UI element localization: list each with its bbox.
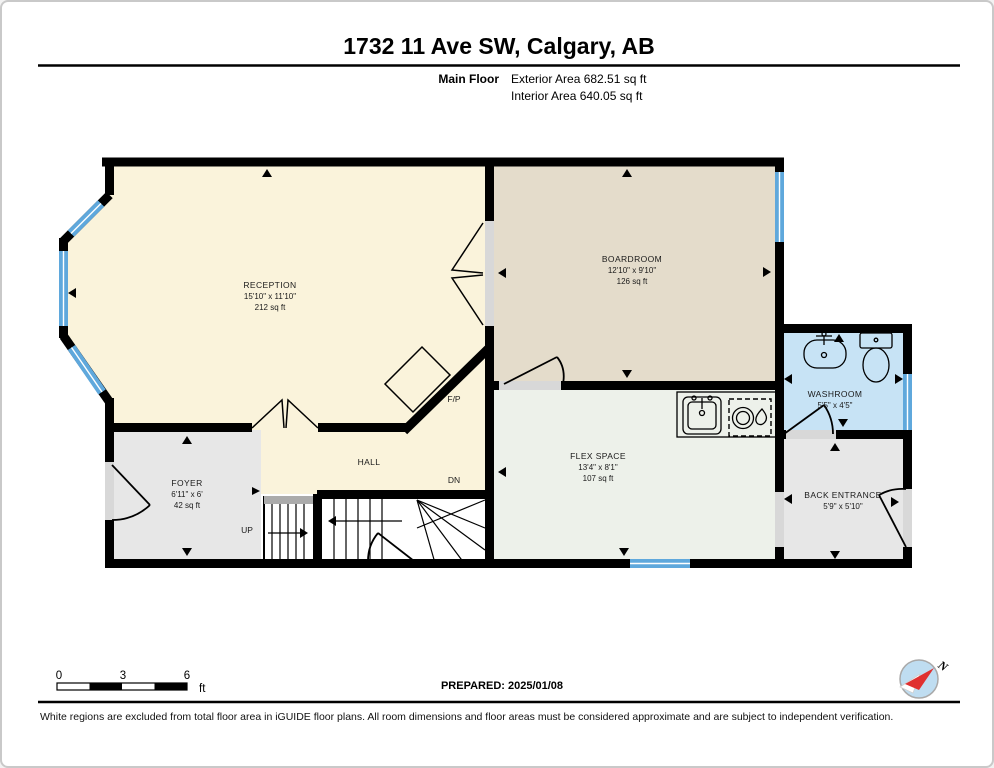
reception-area: 212 sq ft xyxy=(255,303,286,312)
foyer-area: 42 sq ft xyxy=(174,501,201,510)
flex-space-room-area xyxy=(485,386,780,563)
floorplan-canvas: 1732 11 Ave SW, Calgary, AB Main Floor E… xyxy=(2,2,994,768)
reception-label: RECEPTION xyxy=(243,280,296,290)
back-entrance-room-area xyxy=(780,439,907,563)
stairs-down-label: DN xyxy=(448,475,460,485)
boardroom-area: 126 sq ft xyxy=(617,277,648,286)
flex-space-dims: 13'4" x 8'1" xyxy=(578,463,618,472)
boardroom-dims: 12'10" x 9'10" xyxy=(608,266,656,275)
foyer-dims: 6'11" x 6' xyxy=(171,490,203,499)
scale-tick-6: 6 xyxy=(184,670,190,682)
boardroom-label: BOARDROOM xyxy=(602,254,662,264)
reception-dims: 15'10" x 11'10" xyxy=(244,292,296,301)
compass-icon: N xyxy=(900,657,952,698)
stairs-up-label: UP xyxy=(241,525,253,535)
hall-label: HALL xyxy=(358,457,381,467)
flex-space-label: FLEX SPACE xyxy=(570,451,626,461)
back-entrance-dims: 5'9" x 5'10" xyxy=(823,502,863,511)
disclaimer-text: White regions are excluded from total fl… xyxy=(40,711,893,723)
foyer-label: FOYER xyxy=(171,478,202,488)
exterior-area-label: Exterior Area 682.51 sq ft xyxy=(511,72,647,86)
floorplan-page: 1732 11 Ave SW, Calgary, AB Main Floor E… xyxy=(0,0,994,768)
washroom-dims: 5'5" x 4'5" xyxy=(818,401,853,410)
floor-label: Main Floor xyxy=(438,72,499,86)
scale-tick-3: 3 xyxy=(120,670,126,682)
prepared-date: PREPARED: 2025/01/08 xyxy=(441,680,563,692)
scale-unit: ft xyxy=(199,683,206,695)
interior-area-label: Interior Area 640.05 sq ft xyxy=(511,89,643,103)
scale-bar: 0 3 6 ft xyxy=(56,670,206,695)
washroom-label: WASHROOM xyxy=(808,389,863,399)
down-stairs-area xyxy=(317,496,485,563)
scale-tick-0: 0 xyxy=(56,670,62,682)
page-title: 1732 11 Ave SW, Calgary, AB xyxy=(343,33,655,59)
flex-space-area: 107 sq ft xyxy=(583,474,614,483)
washroom-room-area xyxy=(780,328,907,434)
fireplace-label: F/P xyxy=(447,394,461,404)
back-entrance-label: BACK ENTRANCE xyxy=(804,490,881,500)
